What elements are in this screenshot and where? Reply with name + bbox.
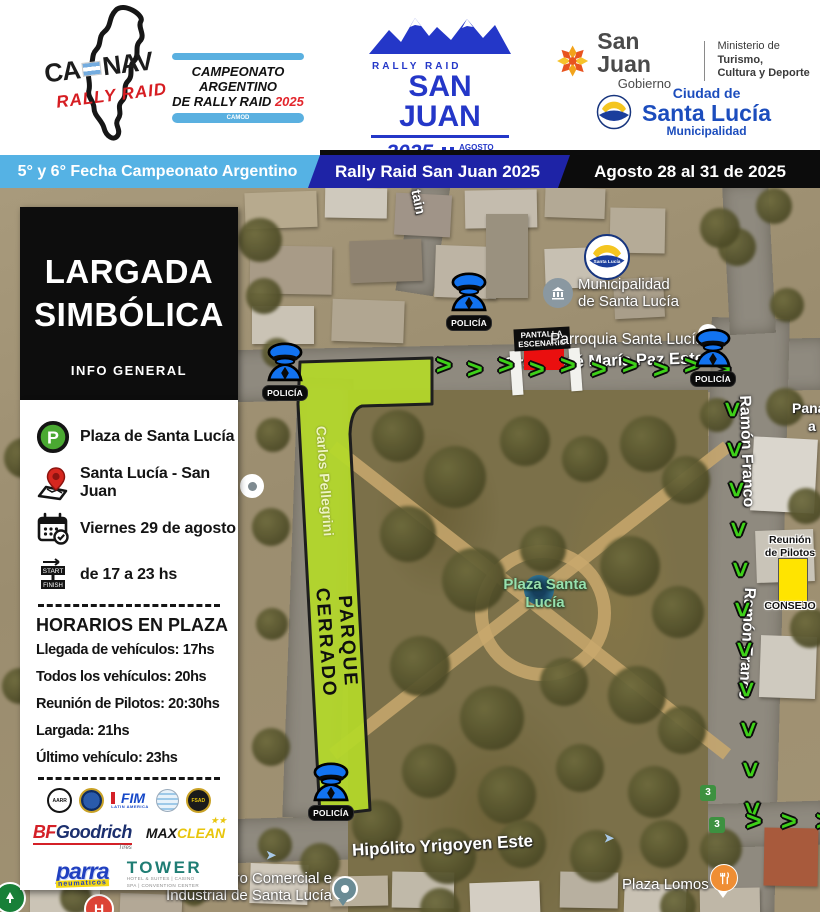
info-text: Santa Lucía - San Juan (80, 465, 238, 501)
route-arrow: > (622, 352, 638, 379)
route-shield-3: 3 (709, 817, 725, 833)
calendar-icon (34, 510, 72, 548)
route-arrow: > (560, 352, 576, 379)
police-label: POLICÍA (262, 385, 308, 401)
police-icon: POLICÍA (308, 762, 354, 821)
divider (38, 777, 220, 780)
tower-logo: TOWER HOTEL & SUITES | CASINO SPA | CONV… (127, 859, 202, 890)
banner-left-text: 5° y 6° Fecha Campeonato Argentino (0, 155, 315, 188)
route-arrow: > (730, 642, 757, 658)
police-icon: POLICÍA (262, 342, 308, 401)
info-general-label: INFO GENERAL (20, 363, 238, 378)
route-arrow: > (720, 442, 747, 458)
event-title: LARGADASIMBÓLICA (20, 251, 238, 337)
svg-text:Santa Lucía: Santa Lucía (594, 259, 621, 265)
poi-label-parroquia: Parroquia Santa Lucía (550, 331, 704, 349)
divider (38, 604, 220, 607)
reunion-pilotos-label: Reuniónde Pilotos (756, 534, 820, 559)
gobierno-logo: San Juan Gobierno Ministerio de Turismo,… (556, 30, 820, 91)
info-item-location: P Plaza de Santa Lucía (34, 418, 238, 456)
campeonato-logo: CAMPEONATO ARGENTINO DE RALLY RAID 2025 … (160, 50, 316, 127)
horario-line: Reunión de Pilotos: 20:30hs (36, 696, 238, 712)
parking-icon: P (34, 418, 72, 456)
sj-name: SAN JUAN (366, 72, 514, 132)
maxclean-logo: ★★ MAXCLEAN (146, 825, 225, 841)
traffic-arrow: ➤ (266, 848, 276, 862)
ciudad-line1: Ciudad de (642, 86, 771, 101)
campeonato-top-bar (172, 53, 304, 60)
route-arrow: > (529, 356, 545, 383)
route-arrow: > (746, 808, 762, 835)
poi-label-plaza-santa-lucia: Plaza SantaLucía (495, 576, 595, 612)
header: CANAV RALLY RAID CAMPEONATO ARGENTINO DE… (0, 0, 820, 150)
route-arrow: > (718, 402, 745, 418)
fsad-logo: FSAD (186, 788, 211, 813)
route-arrow: > (732, 682, 759, 698)
consejo-label: CONSEJO (752, 600, 820, 612)
route-shield-3: 3 (700, 785, 716, 801)
campeonato-line2: DE RALLY RAID 2025 (160, 94, 316, 109)
route-arrow: > (816, 808, 820, 835)
info-text: Viernes 29 de agosto (80, 520, 236, 538)
route-arrow: > (498, 352, 514, 379)
ciudad-line3: Municipalidad (642, 125, 771, 138)
canav-logo: CANAV RALLY RAID (36, 4, 176, 146)
poi-label-plaza-lomos: Plaza Lomos (622, 876, 709, 893)
gobierno-name: San Juan (597, 30, 691, 76)
police-label: POLICÍA (308, 805, 354, 821)
sj-divider (371, 135, 509, 138)
route-arrow: > (722, 482, 749, 498)
route-arrow: > (734, 722, 761, 738)
police-icon: POLICÍA (446, 272, 492, 331)
municipalidad-icon (543, 278, 573, 308)
route-arrow: > (781, 808, 797, 835)
argentina-flag-icon (81, 60, 102, 76)
start-finish-icon: START FINISH (34, 556, 72, 594)
consejo-marker (778, 558, 808, 602)
info-item-date: Viernes 29 de agosto (34, 510, 238, 548)
santa-lucia-city-logo: Santa Lucía (584, 234, 630, 280)
traffic-arrow: ➤ (604, 831, 614, 845)
restaurant-pointer (718, 891, 728, 898)
sidebar-info-panel: P Plaza de Santa Lucía Santa Lucía - San… (20, 400, 238, 890)
federation-badge-logo (79, 788, 104, 813)
route-arrow: > (653, 356, 669, 383)
route-arrow: > (724, 522, 751, 538)
police-icon: POLICÍA (690, 328, 736, 387)
flyer: PARQUE CERRADO Carlos Pellegrini Gral. J… (0, 0, 820, 912)
sponsor-row-federations: AARR FIM LATIN AMERICA FSAD (20, 788, 238, 813)
info-item-city: Santa Lucía - San Juan (34, 464, 238, 502)
restaurant-icon (710, 864, 738, 892)
fim-logo: FIM LATIN AMERICA (111, 792, 149, 810)
sponsor-row-partners: parra neumaticos TOWER HOTEL & SUITES | … (20, 859, 238, 890)
horarios-title: HORARIOS EN PLAZA (36, 615, 238, 636)
map-pin-icon (34, 464, 72, 502)
ministerio-text: Ministerio de Turismo, Cultura y Deporte (717, 40, 820, 81)
route-arrow: > (591, 356, 607, 383)
route-arrow: > (726, 562, 753, 578)
svg-text:FINISH: FINISH (43, 583, 63, 589)
ciudad-santa-lucia-logo: Ciudad de Santa Lucía Municipalidad (596, 86, 771, 137)
parra-logo: parra neumaticos (56, 862, 109, 887)
mountains-icon (369, 12, 511, 56)
sidebar-title-panel: LARGADASIMBÓLICA INFO GENERAL (20, 207, 238, 400)
banner: 5° y 6° Fecha Campeonato Argentino Rally… (0, 150, 820, 188)
sponsor-row-brands: BFGoodrich Tires ★★ MAXCLEAN (20, 822, 238, 851)
banner-center-text: Rally Raid San Juan 2025 (325, 155, 550, 188)
ciudad-line2: Santa Lucía (642, 101, 771, 125)
aarr-logo: AARR (47, 788, 72, 813)
horario-line: Largada: 21hs (36, 723, 238, 739)
horario-line: Llegada de vehículos: 17hs (36, 642, 238, 658)
san-juan-sun-icon (556, 43, 589, 79)
svg-text:START: START (43, 568, 64, 575)
poi-label-municipalidad: Municipalidadde Santa Lucía (578, 276, 679, 311)
banner-right-text: Agosto 28 al 31 de 2025 (575, 155, 805, 188)
info-item-hours: START FINISH de 17 a 23 hs (34, 556, 238, 594)
route-arrow: > (467, 356, 483, 383)
bfgoodrich-logo: BFGoodrich Tires (33, 822, 132, 851)
centro-comercial-pointer (338, 899, 348, 906)
logo-divider (704, 41, 706, 81)
campeonato-line1: CAMPEONATO ARGENTINO (160, 64, 316, 94)
route-arrow: > (736, 762, 763, 778)
info-text: Plaza de Santa Lucía (80, 428, 234, 446)
camod-bar: CAMOD (172, 113, 304, 123)
police-label: POLICÍA (690, 371, 736, 387)
svg-text:P: P (47, 428, 59, 448)
street-label-a-fragment: a (808, 418, 816, 434)
santa-lucia-badge-icon (596, 94, 632, 130)
horario-line: Todos los vehículos: 20hs (36, 669, 238, 685)
casino-logo (156, 789, 179, 812)
generic-poi (240, 474, 264, 498)
street-label-pana-fragment: Pana (792, 400, 820, 416)
route-arrow: > (436, 352, 452, 379)
hospital-icon: H (84, 894, 114, 912)
info-text: de 17 a 23 hs (80, 566, 177, 584)
horario-line: Último vehículo: 23hs (36, 750, 238, 766)
police-label: POLICÍA (446, 315, 492, 331)
